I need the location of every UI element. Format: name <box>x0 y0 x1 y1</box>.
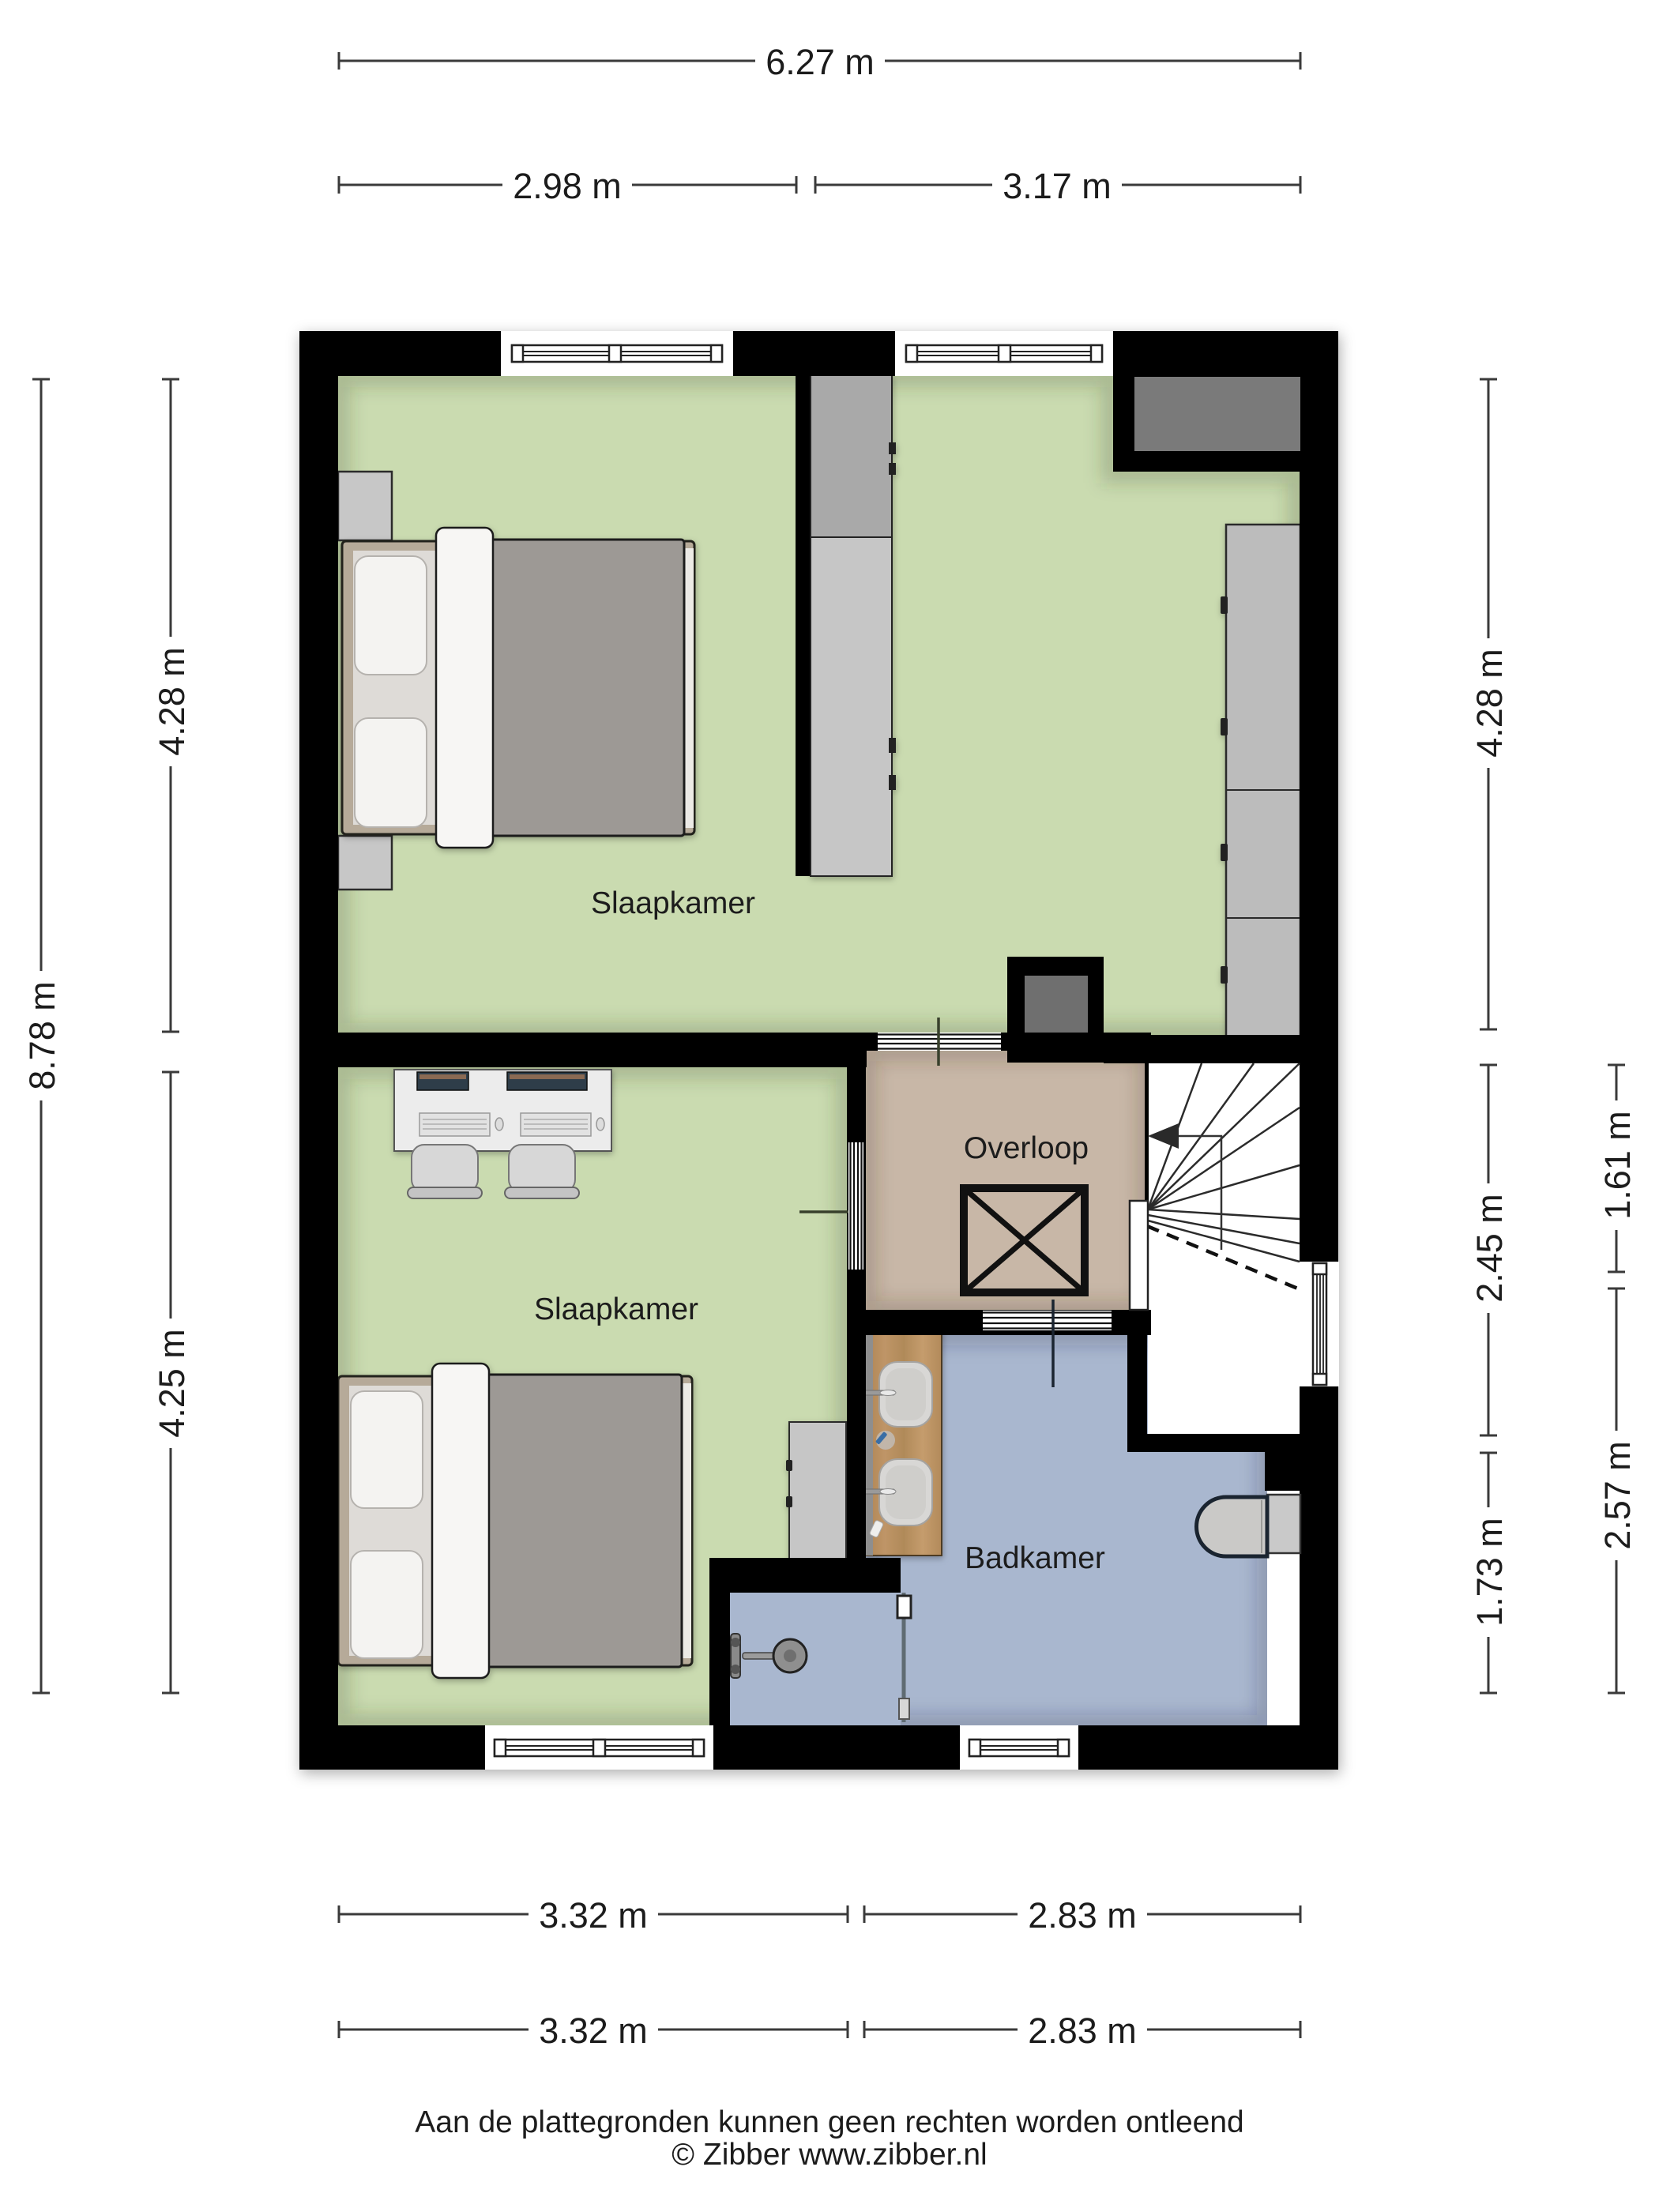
svg-text:Slaapkamer: Slaapkamer <box>591 886 755 920</box>
svg-text:Slaapkamer: Slaapkamer <box>534 1292 698 1326</box>
svg-text:1.61 m: 1.61 m <box>1597 1111 1638 1220</box>
svg-text:2.83 m: 2.83 m <box>1028 1895 1137 1935</box>
svg-text:3.17 m: 3.17 m <box>1003 166 1112 206</box>
svg-text:4.28 m: 4.28 m <box>152 647 192 756</box>
svg-text:3.32 m: 3.32 m <box>539 2011 648 2051</box>
svg-text:4.25 m: 4.25 m <box>152 1329 192 1438</box>
svg-text:Overloop: Overloop <box>964 1131 1089 1165</box>
svg-text:2.57 m: 2.57 m <box>1597 1441 1638 1550</box>
svg-text:© Zibber www.zibber.nl: © Zibber www.zibber.nl <box>671 2138 987 2172</box>
svg-text:2.83 m: 2.83 m <box>1028 2011 1137 2051</box>
svg-text:2.98 m: 2.98 m <box>513 166 622 206</box>
svg-text:6.27 m: 6.27 m <box>766 42 875 82</box>
svg-text:4.28 m: 4.28 m <box>1469 649 1510 758</box>
svg-text:3.32 m: 3.32 m <box>539 1895 648 1935</box>
svg-text:1.73 m: 1.73 m <box>1469 1518 1510 1627</box>
svg-text:Aan de plattegronden kunnen ge: Aan de plattegronden kunnen geen rechten… <box>415 2105 1244 2139</box>
svg-text:Badkamer: Badkamer <box>965 1541 1105 1575</box>
svg-text:8.78 m: 8.78 m <box>22 981 62 1090</box>
svg-text:2.45 m: 2.45 m <box>1469 1194 1510 1303</box>
